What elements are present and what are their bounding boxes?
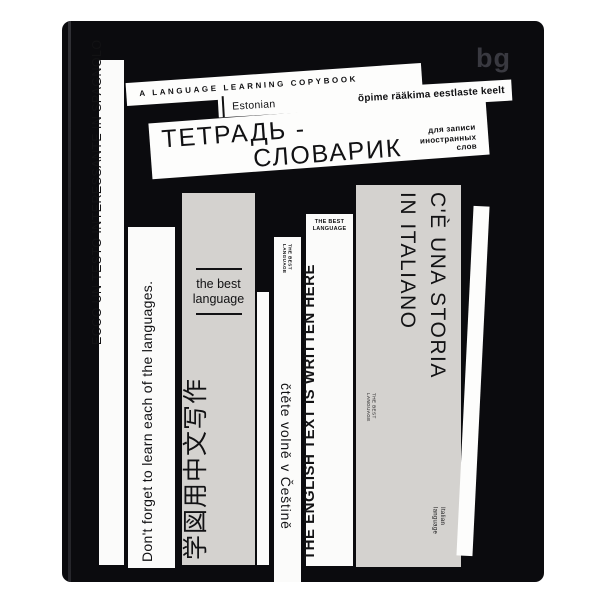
spine-reminder-text: Don't forget to learn each of the langua… <box>139 281 156 562</box>
badge-line1: the best <box>182 277 255 292</box>
cover-binding-edge <box>68 21 71 582</box>
badge-rule-top <box>196 268 242 270</box>
badge-line2: LANGUAGE <box>306 226 353 233</box>
spine-spanish-text: ECCO UN TESTO INTERESSANTE IN SPAGNOLO <box>90 39 105 345</box>
spine-english-text: THE ENGLISH TEXT IS WRITTEN HERE <box>301 264 320 560</box>
spine-chinese-text: 学図用中文写作 <box>176 378 204 560</box>
title-subtitle: для записи иностранных слов <box>419 123 477 156</box>
badge-line2: LANGUAGE <box>365 393 371 422</box>
footer-line1: Italian <box>438 507 446 534</box>
badge-rule-bottom <box>196 313 242 315</box>
best-language-badge-chinese: the best language <box>182 268 255 315</box>
best-language-badge-italian: THE BEST LANGUAGE <box>365 393 377 422</box>
spine-blank-thin <box>257 292 269 565</box>
divider-tick <box>222 96 225 117</box>
product-photo: bg ECCO UN TESTO INTERESSANTE IN SPAGNOL… <box>0 0 600 600</box>
spine-italian-text: C'È UNA STORIA IN ITALIANO <box>392 192 452 379</box>
badge-line1: THE BEST <box>371 393 377 422</box>
footer-line2: language <box>430 507 438 534</box>
spine-slanted-blank <box>456 206 489 556</box>
best-language-badge-english: THE BEST LANGUAGE <box>306 219 353 232</box>
brand-logo: bg <box>476 43 511 74</box>
italian-text-line1: C'È UNA STORIA <box>422 192 452 379</box>
title-banner: ТЕТРАДЬ - СЛОВАРИК для записи иностранны… <box>148 99 489 180</box>
spine-czech-text: čtěte volně v Češtině <box>278 383 294 530</box>
badge-line1: THE BEST <box>287 244 293 274</box>
language-tab: Estonian <box>232 98 276 112</box>
italian-text-line2: IN ITALIANO <box>392 192 422 379</box>
notebook-cover: bg ECCO UN TESTO INTERESSANTE IN SPAGNOL… <box>62 21 544 582</box>
badge-line2: LANGUAGE <box>281 244 287 274</box>
italian-language-footer: Italian language <box>430 507 445 534</box>
best-language-badge-czech: THE BEST LANGUAGE <box>281 244 293 274</box>
badge-line2: language <box>182 292 255 307</box>
